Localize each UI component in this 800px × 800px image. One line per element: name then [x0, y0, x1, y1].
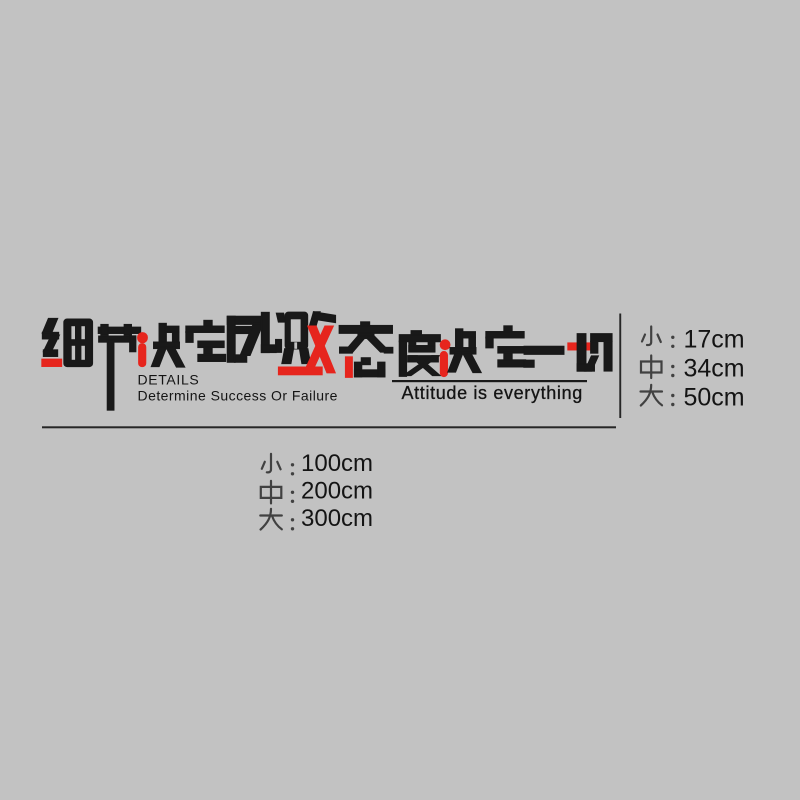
svg-text:50cm: 50cm: [684, 384, 745, 412]
svg-text:Determine Success Or Failure: Determine Success Or Failure: [138, 387, 338, 403]
svg-text:34cm: 34cm: [684, 355, 745, 383]
svg-text:100cm: 100cm: [301, 450, 373, 477]
svg-text:Attitude is everything: Attitude is everything: [402, 383, 583, 403]
svg-text:DETAILS: DETAILS: [138, 371, 200, 387]
svg-text:200cm: 200cm: [301, 478, 373, 505]
svg-text:300cm: 300cm: [301, 505, 373, 532]
svg-text:17cm: 17cm: [684, 325, 745, 353]
